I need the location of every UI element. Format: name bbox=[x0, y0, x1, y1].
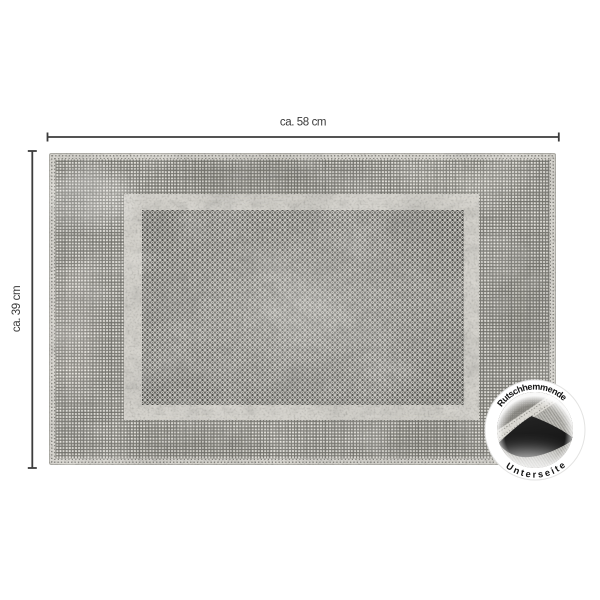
svg-text:ca. 39 cm: ca. 39 cm bbox=[11, 286, 23, 332]
svg-text:ca. 58 cm: ca. 58 cm bbox=[280, 117, 326, 129]
